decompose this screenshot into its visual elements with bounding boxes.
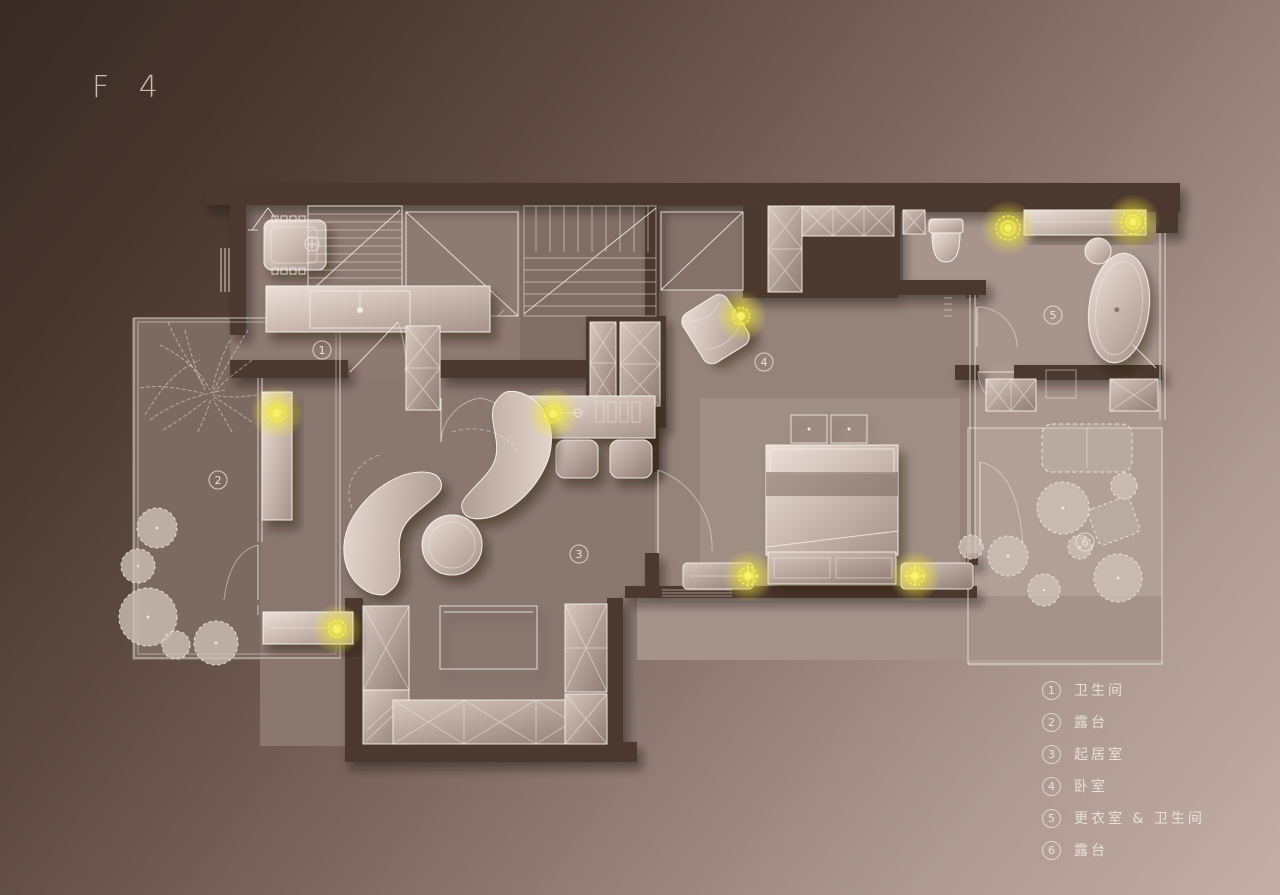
- wardrobe-column-a: [406, 326, 440, 410]
- ceiling-light: [311, 603, 363, 655]
- desk-chair: [610, 440, 652, 478]
- wardrobe-column-b: [590, 322, 616, 404]
- legend-number: 6: [1042, 841, 1061, 860]
- legend-item-bathroom: 1 卫生间: [1042, 674, 1262, 706]
- svg-text:2: 2: [215, 474, 222, 487]
- dressing-cabinet-left: [986, 379, 1036, 411]
- ceiling-light: [526, 387, 580, 441]
- ceiling-light: [1105, 194, 1161, 250]
- legend-label: 起居室: [1074, 744, 1125, 764]
- svg-text:1: 1: [319, 344, 326, 357]
- legend-item-bedroom: 4 卧室: [1042, 770, 1262, 802]
- legend-label: 卧室: [1074, 776, 1108, 796]
- bath-stool: [1085, 238, 1111, 264]
- legend-number: 3: [1042, 745, 1061, 764]
- cabinet-right-column: [565, 604, 607, 744]
- dressing-cabinet-right: [1110, 379, 1158, 411]
- blanket-band: [766, 472, 898, 496]
- legend-label: 更衣室 & 卫生间: [1074, 808, 1205, 828]
- round-ottoman: [422, 515, 482, 575]
- legend-label: 露台: [1074, 712, 1108, 732]
- legend-item-terrace-west: 2 露台: [1042, 706, 1262, 738]
- legend-number: 1: [1042, 681, 1061, 700]
- wardrobe-column-c: [620, 322, 660, 406]
- legend-label: 露台: [1074, 840, 1108, 860]
- svg-text:4: 4: [761, 356, 768, 369]
- desk-chair: [556, 440, 598, 478]
- legend-item-dressing: 5 更衣室 & 卫生间: [1042, 802, 1262, 834]
- legend-label: 卫生间: [1074, 680, 1125, 700]
- foot-bench: [768, 552, 896, 584]
- legend-item-terrace-east: 6 露台: [1042, 834, 1262, 866]
- legend-number: 5: [1042, 809, 1061, 828]
- ceiling-light: [722, 550, 774, 602]
- ceiling-light: [715, 290, 767, 342]
- floor-walkway: [630, 596, 1162, 660]
- ceiling-light: [250, 386, 304, 440]
- legend-number: 2: [1042, 713, 1061, 732]
- svg-text:3: 3: [576, 548, 583, 561]
- ceiling-light: [889, 550, 941, 602]
- radiator: [264, 216, 326, 274]
- floor-plan-page: F 4: [0, 0, 1280, 895]
- closet-column: [768, 206, 802, 292]
- legend: 1 卫生间 2 露台 3 起居室 4 卧室 5 更衣室 & 卫生间 6 露台: [1042, 674, 1262, 866]
- closet-row: [802, 206, 894, 236]
- svg-text:6: 6: [1082, 536, 1089, 549]
- closet-single: [903, 210, 925, 234]
- outdoor-stool: [1111, 473, 1137, 499]
- vanity-counter: [266, 286, 490, 332]
- legend-number: 4: [1042, 777, 1061, 796]
- legend-item-living: 3 起居室: [1042, 738, 1262, 770]
- svg-text:5: 5: [1050, 309, 1057, 322]
- ceiling-light: [980, 200, 1036, 256]
